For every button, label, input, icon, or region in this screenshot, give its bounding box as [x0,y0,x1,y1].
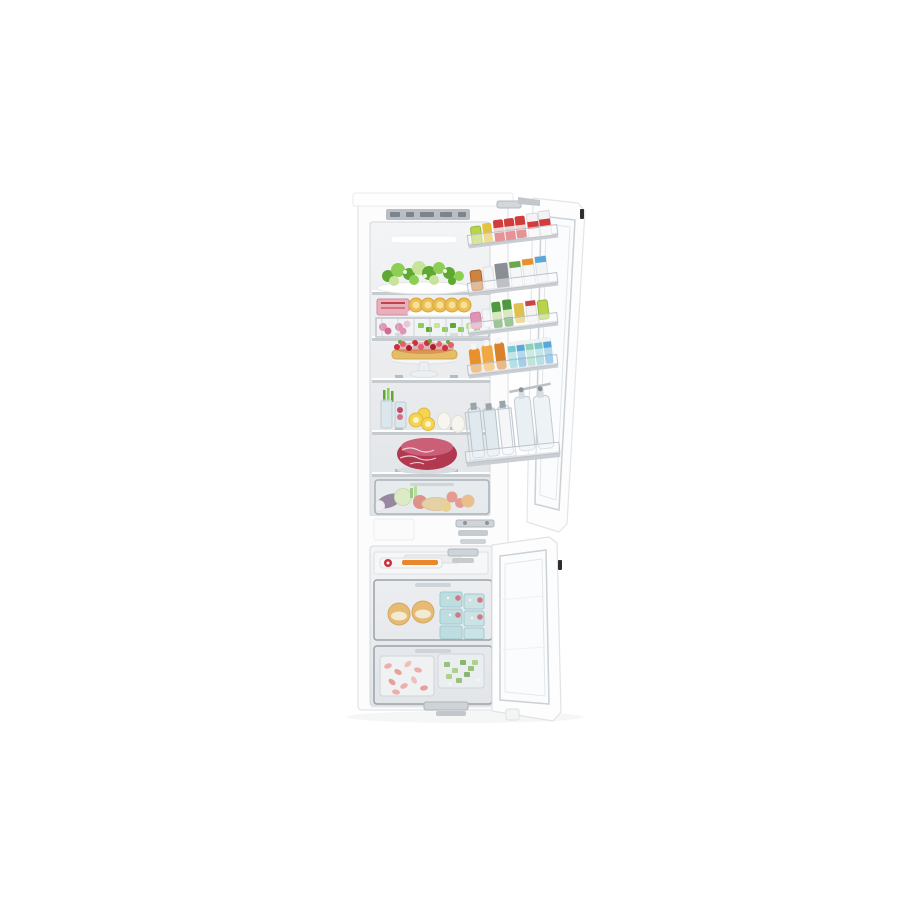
drawer-handle [415,583,451,587]
fridge-freezer-illustration [0,0,922,922]
meat-package [377,299,409,315]
crisper-drawer [374,480,490,514]
egg-tarts [408,298,472,316]
cabinet-top-cap [353,193,513,206]
freezer-top-hinge [448,549,478,556]
veggie-glass [381,400,392,428]
beef-roast [397,438,457,474]
middle-section [371,516,507,546]
door-vent [580,209,584,219]
freezer-door-vent [558,560,562,570]
door-foot [506,709,519,720]
freezer-door-gasket [500,550,549,704]
freezer-compartment [370,546,492,706]
product-photo-scene [0,0,922,922]
control-panel [386,209,470,220]
top-hinge [497,201,521,208]
crisper-handle [410,483,454,486]
freezer-lower-drawer [374,646,492,704]
drawer-handle-2 [415,649,451,653]
led-light [391,236,457,243]
freezer-upper-drawer [374,580,492,640]
